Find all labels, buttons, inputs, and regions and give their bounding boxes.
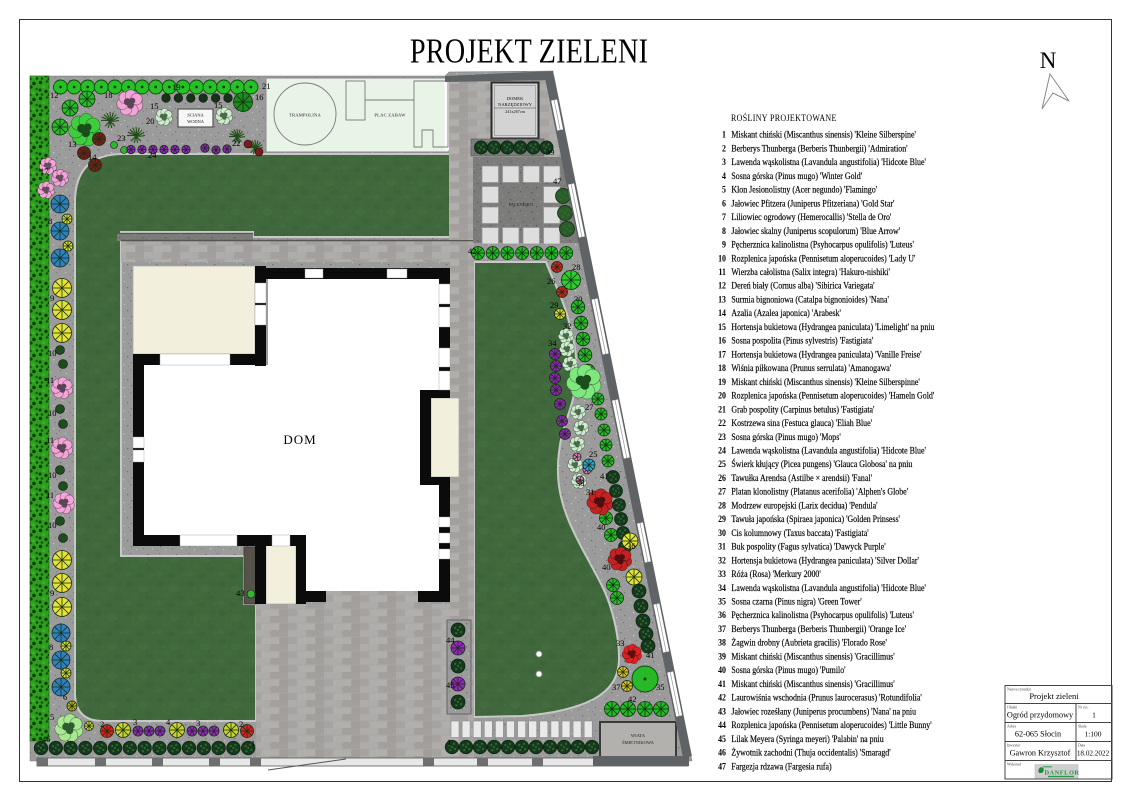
- svg-text:Miskant chiński (Miscanthus si: Miskant chiński (Miscanthus sinensis) 'K…: [731, 376, 920, 387]
- svg-text:40: 40: [597, 522, 606, 532]
- svg-text:37: 37: [718, 623, 726, 634]
- svg-text:37: 37: [612, 682, 621, 692]
- svg-text:Lawenda wąskolistna (Lavandula: Lawenda wąskolistna (Lavandula angustifo…: [731, 445, 926, 456]
- svg-text:1: 1: [722, 129, 726, 140]
- svg-text:41: 41: [718, 678, 726, 689]
- svg-text:1:100: 1:100: [1084, 730, 1101, 739]
- svg-text:22: 22: [718, 417, 726, 428]
- svg-text:47: 47: [553, 176, 562, 186]
- svg-text:42: 42: [468, 246, 477, 256]
- svg-text:33: 33: [616, 638, 625, 648]
- svg-text:29: 29: [550, 300, 559, 310]
- svg-text:9: 9: [50, 588, 54, 598]
- svg-text:Lawenda wąskolistna (Lavandula: Lawenda wąskolistna (Lavandula angustifo…: [731, 157, 926, 168]
- svg-text:Skala: Skala: [1078, 725, 1087, 729]
- svg-text:SCIANA: SCIANA: [187, 113, 204, 118]
- svg-text:WODNA: WODNA: [187, 119, 205, 124]
- svg-text:Modrzew europejski (Larix deci: Modrzew europejski (Larix decidua) 'Pend…: [731, 500, 877, 511]
- svg-text:Cis kolumnowy (Taxus baccata): Cis kolumnowy (Taxus baccata) 'Fastigiat…: [731, 527, 869, 538]
- svg-text:PROJEKT ZIELENI: PROJEKT ZIELENI: [410, 32, 648, 70]
- svg-text:PALENISKO: PALENISKO: [509, 202, 534, 207]
- svg-text:17: 17: [40, 166, 49, 176]
- svg-text:12: 12: [718, 280, 726, 291]
- svg-text:11: 11: [46, 375, 54, 385]
- svg-text:20: 20: [718, 390, 726, 401]
- svg-text:Azalia (Azalea japonica) 'Arab: Azalia (Azalea japonica) 'Arabesk': [731, 308, 841, 319]
- svg-text:2: 2: [722, 143, 726, 154]
- svg-text:Projekt zieleni: Projekt zieleni: [1029, 691, 1079, 701]
- svg-text:25: 25: [718, 459, 726, 470]
- svg-text:31: 31: [586, 487, 595, 497]
- svg-text:44: 44: [718, 719, 726, 730]
- svg-text:18: 18: [718, 362, 726, 373]
- svg-text:35: 35: [718, 596, 726, 607]
- svg-text:Żywotnik zachodni (Thuja occid: Żywotnik zachodni (Thuja occidentalis) '…: [731, 747, 891, 758]
- svg-text:Rozplenica japońska (Pennisetu: Rozplenica japońska (Pennisetum aloperuc…: [731, 253, 915, 264]
- svg-text:36: 36: [627, 541, 636, 551]
- svg-text:34: 34: [718, 582, 726, 593]
- svg-text:Sosna górska (Pinus mugo) 'Win: Sosna górska (Pinus mugo) 'Winter Gold': [731, 170, 862, 181]
- svg-text:11: 11: [46, 490, 54, 500]
- svg-text:1: 1: [447, 737, 451, 747]
- svg-text:Fargezja rdzawa (Fargesia rufa: Fargezja rdzawa (Fargesia rufa): [731, 761, 831, 772]
- svg-text:25: 25: [589, 449, 598, 459]
- svg-text:Buk pospolity (Fagus sylvatica: Buk pospolity (Fagus sylvatica) 'Dawyck …: [731, 541, 886, 552]
- svg-text:ŚMIETNIKOWA: ŚMIETNIKOWA: [622, 740, 654, 745]
- svg-text:6: 6: [722, 198, 727, 209]
- svg-text:14: 14: [718, 308, 726, 319]
- svg-text:31: 31: [718, 541, 726, 552]
- svg-text:Rozplenica japońska (Pennisetu: Rozplenica japońska (Pennisetum aloperuc…: [731, 390, 934, 401]
- svg-text:43: 43: [718, 706, 726, 717]
- svg-text:10: 10: [48, 520, 57, 530]
- svg-text:Dereń biały (Cornus alba) 'Sib: Dereń biały (Cornus alba) 'Sibirica Vari…: [731, 280, 874, 291]
- svg-text:Nr rys.: Nr rys.: [1078, 706, 1089, 710]
- svg-text:Tawułka Arendsa (Astilbe × are: Tawułka Arendsa (Astilbe × arendsii) 'Fa…: [731, 472, 872, 483]
- svg-text:Data: Data: [1078, 744, 1085, 748]
- svg-text:Ogród przydomowy: Ogród przydomowy: [1007, 711, 1074, 720]
- svg-text:17: 17: [718, 349, 726, 360]
- svg-text:Sosna górska (Pinus mugo) 'Pum: Sosna górska (Pinus mugo) 'Pumilo': [731, 665, 846, 676]
- svg-text:4: 4: [722, 170, 727, 181]
- svg-text:Miskant chiński (Miscanthus si: Miskant chiński (Miscanthus sinensis) 'K…: [731, 129, 916, 140]
- svg-text:15: 15: [718, 321, 726, 332]
- svg-text:42: 42: [718, 692, 726, 703]
- svg-text:19: 19: [172, 82, 181, 92]
- svg-text:20: 20: [146, 116, 155, 126]
- svg-text:6: 6: [63, 692, 67, 702]
- svg-text:39: 39: [546, 147, 555, 157]
- svg-text:15: 15: [150, 101, 159, 111]
- svg-text:11: 11: [46, 435, 54, 445]
- svg-text:28: 28: [572, 262, 581, 272]
- svg-text:Sosna czarna (Pinus nigra) 'Gr: Sosna czarna (Pinus nigra) 'Green Tower': [731, 596, 862, 607]
- svg-text:Sosna pospolita (Pinus sylvest: Sosna pospolita (Pinus sylvestris) 'Fast…: [731, 335, 873, 346]
- svg-text:27: 27: [718, 486, 726, 497]
- svg-text:Gawron Krzysztof: Gawron Krzysztof: [1010, 749, 1071, 758]
- svg-text:13: 13: [68, 139, 77, 149]
- svg-text:9: 9: [50, 293, 54, 303]
- svg-text:Miskant chiński (Miscanthus si: Miskant chiński (Miscanthus sinensis) 'G…: [731, 651, 895, 662]
- svg-text:24: 24: [148, 150, 157, 160]
- svg-text:241x267cm: 241x267cm: [505, 109, 526, 114]
- svg-text:29: 29: [718, 513, 726, 524]
- svg-text:38: 38: [576, 478, 585, 488]
- svg-text:8: 8: [48, 216, 52, 226]
- svg-text:12: 12: [50, 90, 59, 100]
- svg-text:10: 10: [48, 408, 57, 418]
- svg-text:Adres: Adres: [1007, 725, 1017, 729]
- svg-text:Obiekt: Obiekt: [1007, 706, 1018, 710]
- svg-text:41: 41: [646, 650, 655, 660]
- svg-text:Hortensja bukietowa (Hydrangea: Hortensja bukietowa (Hydrangea paniculat…: [731, 321, 935, 332]
- svg-text:Wierzba całolistna (Salix inte: Wierzba całolistna (Salix integra) 'Haku…: [731, 266, 890, 277]
- svg-text:33: 33: [718, 568, 726, 579]
- svg-text:15: 15: [214, 100, 223, 110]
- svg-text:Lawenda wąskolistna (Lavandula: Lawenda wąskolistna (Lavandula angustifo…: [731, 582, 926, 593]
- svg-text:Sosna górska (Pinus mugo) 'Mop: Sosna górska (Pinus mugo) 'Mops': [731, 431, 841, 442]
- svg-text:Tawuła japońska (Spiraea japon: Tawuła japońska (Spiraea japonica) 'Gold…: [731, 513, 900, 524]
- svg-text:10: 10: [48, 348, 57, 358]
- svg-text:39: 39: [718, 651, 726, 662]
- svg-text:WIATA: WIATA: [631, 733, 646, 738]
- svg-text:5: 5: [722, 184, 727, 195]
- svg-text:21: 21: [718, 404, 726, 415]
- svg-text:Jałowiec Pfitzera (Juniperus P: Jałowiec Pfitzera (Juniperus Pfitzeriana…: [731, 198, 894, 209]
- svg-text:23: 23: [718, 431, 726, 442]
- svg-text:3: 3: [133, 717, 137, 727]
- svg-text:DANFLOR: DANFLOR: [1044, 770, 1079, 777]
- svg-text:43: 43: [236, 588, 245, 598]
- svg-text:62-065 Słocin: 62-065 Słocin: [1015, 730, 1061, 739]
- svg-text:34: 34: [548, 338, 557, 348]
- svg-text:40: 40: [602, 562, 611, 572]
- svg-text:45: 45: [446, 680, 455, 690]
- svg-text:5: 5: [50, 712, 54, 722]
- svg-text:Liliowiec ogrodowy (Hemerocall: Liliowiec ogrodowy (Hemerocallis) 'Stell…: [731, 211, 891, 222]
- svg-text:NARZĘDZIOWY: NARZĘDZIOWY: [498, 102, 533, 107]
- svg-text:9: 9: [722, 239, 727, 250]
- svg-text:36: 36: [718, 610, 726, 621]
- svg-text:8: 8: [722, 225, 727, 236]
- svg-text:14: 14: [88, 152, 97, 162]
- svg-text:16: 16: [718, 335, 726, 346]
- svg-text:Wykonał: Wykonał: [1007, 763, 1022, 767]
- svg-text:Kostrzewa sina (Festuca glauca: Kostrzewa sina (Festuca glauca) 'Eliah B…: [731, 417, 872, 428]
- svg-text:18.02.2022: 18.02.2022: [1077, 750, 1110, 758]
- svg-text:32: 32: [718, 555, 726, 566]
- svg-text:28: 28: [718, 500, 726, 511]
- svg-text:Miskant chiński (Miscanthus si: Miskant chiński (Miscanthus sinensis) 'G…: [731, 678, 895, 689]
- svg-text:Grab pospolity (Carpinus betul: Grab pospolity (Carpinus betulus) 'Fasti…: [731, 404, 874, 415]
- svg-text:ROŚLINY PROJEKTOWANE: ROŚLINY PROJEKTOWANE: [731, 112, 837, 123]
- svg-text:42: 42: [628, 694, 637, 704]
- svg-text:35: 35: [656, 682, 665, 692]
- svg-text:Wiśnia piłkowana (Prunus serru: Wiśnia piłkowana (Prunus serrulata) 'Ama…: [731, 362, 891, 373]
- svg-text:Laurowiśnia wschodnia (Prunus: Laurowiśnia wschodnia (Prunus lauroceras…: [731, 692, 922, 703]
- svg-text:1: 1: [251, 738, 255, 748]
- svg-text:26: 26: [718, 472, 726, 483]
- svg-text:3: 3: [722, 157, 727, 168]
- svg-text:Platan klonolistny (Platanus a: Platan klonolistny (Platanus acerifolia)…: [731, 486, 908, 497]
- svg-text:Świerk kłujący (Picea pungens): Świerk kłujący (Picea pungens) 'Glauca G…: [731, 459, 913, 470]
- svg-text:11: 11: [718, 266, 725, 277]
- svg-text:Rozplenica japońska (Pennisetu: Rozplenica japońska (Pennisetum aloperuc…: [731, 719, 932, 730]
- svg-text:Surmia bignoniowa (Catalpa big: Surmia bignoniowa (Catalpa bignonioides)…: [731, 294, 889, 305]
- svg-text:2: 2: [239, 719, 243, 729]
- svg-text:26: 26: [547, 276, 556, 286]
- svg-text:46: 46: [42, 734, 51, 744]
- svg-text:38: 38: [718, 637, 726, 648]
- svg-text:7: 7: [722, 211, 727, 222]
- svg-text:Pęcherznica kalinolistna (Psyh: Pęcherznica kalinolistna (Psyhocarpus op…: [731, 239, 914, 250]
- svg-text:Nazwa rysunku: Nazwa rysunku: [1007, 688, 1031, 692]
- svg-text:Hortensja bukietowa (Hydrangea: Hortensja bukietowa (Hydrangea paniculat…: [731, 555, 919, 566]
- svg-text:16: 16: [255, 92, 264, 102]
- svg-text:Żagwin drobny (Aubrieta gracil: Żagwin drobny (Aubrieta gracilis) 'Flora…: [731, 637, 887, 648]
- svg-text:44: 44: [446, 635, 455, 645]
- svg-text:Klon Jesionolistny (Acer negun: Klon Jesionolistny (Acer negundo) 'Flami…: [731, 184, 877, 195]
- svg-text:19: 19: [718, 376, 726, 387]
- svg-text:Pęcherznica kalinolistna (Psyh: Pęcherznica kalinolistna (Psyhocarpus op…: [731, 610, 914, 621]
- svg-text:DOMEK: DOMEK: [507, 96, 525, 101]
- svg-text:13: 13: [718, 294, 726, 305]
- svg-text:46: 46: [718, 747, 726, 758]
- svg-text:PLAC ZABAW: PLAC ZABAW: [374, 113, 406, 118]
- svg-text:47: 47: [718, 761, 726, 772]
- svg-text:Jałowiec skalny (Juniperus sco: Jałowiec skalny (Juniperus scopulorum) '…: [731, 225, 900, 236]
- svg-text:Berberys Thunberga (Berberis T: Berberys Thunberga (Berberis Thunbergii)…: [731, 143, 908, 154]
- svg-text:Hortensja bukietowa (Hydrangea: Hortensja bukietowa (Hydrangea paniculat…: [731, 349, 922, 360]
- svg-text:Inwestor: Inwestor: [1007, 744, 1021, 748]
- svg-text:1: 1: [1092, 711, 1096, 720]
- svg-text:21: 21: [262, 81, 271, 91]
- svg-text:Róża (Rosa) 'Merkury 2000': Róża (Rosa) 'Merkury 2000': [731, 568, 821, 579]
- svg-text:N: N: [1040, 48, 1057, 73]
- svg-text:10: 10: [48, 470, 57, 480]
- svg-text:3: 3: [196, 718, 200, 728]
- svg-text:TRAMPOLINA: TRAMPOLINA: [289, 113, 322, 118]
- svg-text:22: 22: [232, 138, 241, 148]
- svg-text:Berberys Thunberga (Berberis T: Berberys Thunberga (Berberis Thunbergii)…: [731, 623, 906, 634]
- svg-text:40: 40: [718, 665, 726, 676]
- svg-text:Lilak Meyera (Syringa meyeri): Lilak Meyera (Syringa meyeri) 'Palabin' …: [731, 733, 884, 744]
- svg-text:10: 10: [718, 253, 726, 264]
- svg-text:45: 45: [718, 733, 726, 744]
- svg-text:8: 8: [49, 642, 53, 652]
- svg-text:18: 18: [104, 90, 113, 100]
- svg-text:23: 23: [117, 133, 126, 143]
- svg-text:Jałowiec roześłany (Juniperus: Jałowiec roześłany (Juniperus procumbens…: [731, 706, 916, 717]
- svg-text:24: 24: [718, 445, 726, 456]
- svg-text:2: 2: [100, 719, 104, 729]
- svg-text:DOM: DOM: [283, 432, 316, 447]
- svg-text:30: 30: [718, 527, 726, 538]
- svg-text:27: 27: [585, 402, 594, 412]
